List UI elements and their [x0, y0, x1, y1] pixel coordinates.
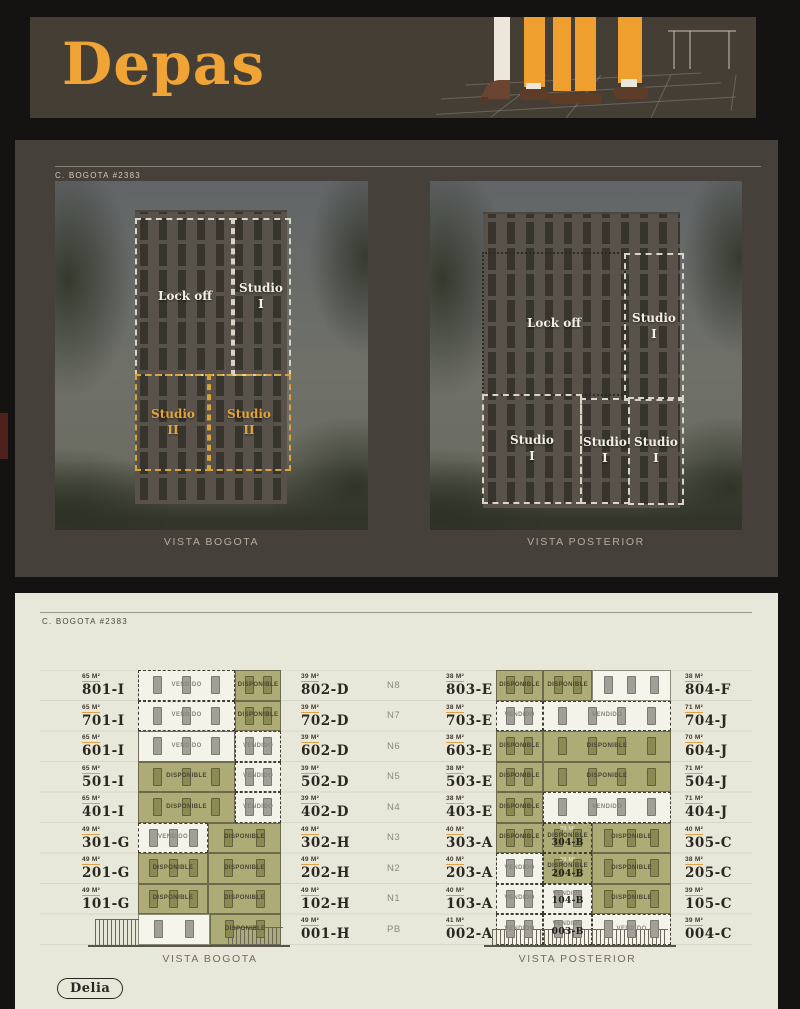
address-label: C. BOGOTA #2383	[55, 171, 141, 180]
fence-decoration	[95, 919, 139, 946]
unit-label: 38 M²603-E	[444, 731, 496, 762]
unit-box: DISPONIBLE	[543, 762, 671, 793]
overlay-label: Studio I	[510, 433, 554, 464]
floor-row: N4	[387, 792, 421, 823]
floor-label: N6	[387, 741, 400, 752]
unit-status: VENDIDO	[505, 712, 535, 719]
facade-strip: VENDIDOVENDIDO104-BDISPONIBLE	[496, 884, 671, 915]
unit-text: VENDIDO	[497, 702, 542, 731]
elevation-row: 38 M²803-EDISPONIBLEDISPONIBLE38 M²804-F	[444, 670, 747, 701]
elevation-row: 49 M²101-GDISPONIBLEDISPONIBLE49 M²102-H	[66, 884, 364, 915]
unit-status: DISPONIBLE	[611, 895, 652, 902]
caption-vista-bogota: VISTA BOGOTA	[55, 536, 368, 548]
unit-code: 501-I	[82, 775, 125, 789]
unit-code: 302-H	[301, 836, 350, 850]
unit-text: DISPONIBLE	[544, 671, 591, 700]
unit-box: VENDIDO	[138, 731, 235, 762]
unit-code: 104-B	[552, 897, 584, 907]
unit-area: 65 M²	[82, 765, 100, 774]
floor-levels-column: N8N7N6N5N4N3N2N1PB	[387, 670, 421, 945]
photo-vista-bogota: Lock off Studio I Studio II Studio II	[55, 181, 368, 530]
unit-label: 65 M²701-I	[66, 701, 138, 732]
unit-code: 201-G	[82, 866, 130, 880]
unit-text: DISPONIBLE	[236, 671, 280, 700]
unit-status: DISPONIBLE	[224, 834, 265, 841]
facade-strip: VENDIDODISPONIBLE	[138, 823, 281, 854]
unit-status: DISPONIBLE	[587, 743, 628, 750]
unit-status: DISPONIBLE	[499, 773, 540, 780]
facade-strip: VENDIDO39 M²DISPONIBLE204-BDISPONIBLE	[496, 853, 671, 884]
unit-box: DISPONIBLE	[592, 823, 671, 854]
facade-strip: VENDIDOVENDIDO003-BVENDIDO	[496, 914, 671, 945]
overlay-label: Studio II	[151, 407, 195, 438]
unit-label: 38 M²803-E	[444, 670, 496, 701]
unit-code: 305-C	[685, 836, 732, 850]
unit-code: 303-A	[446, 836, 493, 850]
unit-label: 39 M²502-D	[281, 762, 364, 793]
elevation-row: 65 M²501-IDISPONIBLEVENDIDO39 M²502-D	[66, 762, 364, 793]
elevation-row: 41 M²002-AVENDIDOVENDIDO003-BVENDIDO39 M…	[444, 914, 747, 945]
unit-box: DISPONIBLE	[496, 762, 543, 793]
unit-text: VENDIDO	[544, 793, 670, 822]
floor-label: N7	[387, 710, 400, 721]
unit-status: VENDIDO	[172, 682, 202, 689]
unit-box: DISPONIBLE	[138, 792, 235, 823]
unit-text: DISPONIBLE	[497, 763, 542, 792]
unit-label: 38 M²403-E	[444, 792, 496, 823]
unit-text: DISPONIBLE	[211, 915, 281, 944]
unit-area: 39 M²	[301, 765, 319, 774]
unit-status: VENDIDO	[158, 834, 188, 841]
unit-box	[592, 670, 671, 701]
unit-area: 65 M²	[82, 704, 100, 713]
unit-box: VENDIDO	[543, 701, 671, 732]
unit-status: DISPONIBLE	[153, 895, 194, 902]
unit-box: VENDIDO	[235, 792, 281, 823]
unit-code: 001-H	[301, 927, 350, 941]
unit-text: DISPONIBLE	[497, 732, 542, 761]
unit-box: DISPONIBLE	[496, 823, 543, 854]
availability-panel: C. BOGOTA #2383 65 M²801-IVENDIDODISPONI…	[15, 593, 778, 1009]
unit-box: DISPONIBLE	[208, 823, 281, 854]
floor-label: PB	[387, 924, 401, 935]
overlay-label: Studio I	[239, 281, 283, 312]
unit-code: 603-E	[446, 744, 493, 758]
overlay-studio-1: Studio I	[628, 397, 684, 505]
unit-code: 704-J	[685, 714, 728, 728]
unit-status: VENDIDO	[592, 804, 622, 811]
floor-row: N2	[387, 853, 421, 884]
unit-text: 39 M²DISPONIBLE304-B	[544, 824, 591, 853]
unit-text: DISPONIBLE	[544, 732, 670, 761]
unit-text: DISPONIBLE	[139, 885, 207, 914]
unit-label: 39 M²802-D	[281, 670, 364, 701]
unit-label: 70 M²604-J	[671, 731, 747, 762]
people-legs-illustration	[436, 17, 756, 118]
unit-area: 40 M²	[446, 856, 464, 865]
unit-status: DISPONIBLE	[224, 865, 265, 872]
unit-area: 38 M²	[446, 734, 464, 743]
unit-text: DISPONIBLE	[236, 702, 280, 731]
facade-strip: DISPONIBLEDISPONIBLE	[138, 853, 281, 884]
unit-label: 65 M²501-I	[66, 762, 138, 793]
unit-area: 39 M²	[301, 795, 319, 804]
unit-status: VENDIDO	[505, 895, 535, 902]
unit-code: 604-J	[685, 744, 728, 758]
unit-code: 403-E	[446, 805, 493, 819]
unit-box: VENDIDO	[543, 792, 671, 823]
unit-text: DISPONIBLE	[544, 763, 670, 792]
unit-status: VENDIDO	[172, 743, 202, 750]
unit-status: DISPONIBLE	[238, 712, 279, 719]
facade-strip: VENDIDODISPONIBLE	[138, 701, 281, 732]
unit-code: 204-B	[552, 870, 584, 880]
caption-vista-posterior: VISTA POSTERIOR	[430, 536, 742, 548]
unit-box: DISPONIBLE	[138, 853, 208, 884]
unit-code: 504-J	[685, 775, 728, 789]
elevation-row: 40 M²203-AVENDIDO39 M²DISPONIBLE204-BDIS…	[444, 853, 747, 884]
facade-strip: VENDIDOVENDIDO	[496, 701, 671, 732]
floor-row: N7	[387, 701, 421, 732]
divider	[40, 612, 752, 613]
floor-row: N1	[387, 884, 421, 915]
unit-text: VENDIDO104-B	[544, 885, 591, 914]
unit-text: VENDIDO	[236, 793, 280, 822]
unit-label: 39 M²402-D	[281, 792, 364, 823]
unit-area: 39 M²	[685, 917, 703, 926]
unit-code: 105-C	[685, 897, 732, 911]
overlay-studio-1: Studio I	[580, 398, 630, 504]
elevation-row: 49 M²301-GVENDIDODISPONIBLE49 M²302-H	[66, 823, 364, 854]
table-icon	[668, 31, 736, 69]
unit-label: 40 M²103-A	[444, 884, 496, 915]
unit-code: 601-I	[82, 744, 125, 758]
unit-label: 65 M²801-I	[66, 670, 138, 701]
facade-strip: DISPONIBLEDISPONIBLE	[496, 670, 671, 701]
unit-text: DISPONIBLE	[209, 885, 280, 914]
unit-code: 202-H	[301, 866, 350, 880]
caption-vista-posterior: VISTA POSTERIOR	[470, 953, 685, 965]
facade-strip: DISPONIBLE39 M²DISPONIBLE304-BDISPONIBLE	[496, 823, 671, 854]
delia-logo: Delia	[57, 978, 123, 999]
unit-area: 38 M²	[446, 795, 464, 804]
facade-strip: VENDIDOVENDIDO	[138, 731, 281, 762]
unit-text: DISPONIBLE	[593, 854, 670, 883]
overlay-studio-1: Studio I	[231, 218, 291, 376]
unit-box: DISPONIBLE	[210, 914, 282, 945]
unit-area: 39 M²	[301, 704, 319, 713]
unit-text: DISPONIBLE	[139, 793, 234, 822]
unit-box: DISPONIBLE	[208, 853, 281, 884]
elevation-vista-bogota: 65 M²801-IVENDIDODISPONIBLE39 M²802-D65 …	[66, 670, 364, 945]
unit-box: VENDIDO	[235, 762, 281, 793]
floor-row: PB	[387, 914, 421, 945]
unit-area: 71 M²	[685, 765, 703, 774]
unit-box: 39 M²DISPONIBLE304-B	[543, 823, 592, 854]
unit-text: VENDIDO	[497, 885, 542, 914]
unit-label: 49 M²101-G	[66, 884, 138, 915]
buildings-panel: C. BOGOTA #2383 Lock off Studio I Studio…	[15, 140, 778, 577]
unit-code: 701-I	[82, 714, 125, 728]
overlay-label: Studio I	[632, 311, 676, 342]
unit-status: DISPONIBLE	[166, 804, 207, 811]
unit-status: DISPONIBLE	[499, 682, 540, 689]
elevation-row: 65 M²601-IVENDIDOVENDIDO39 M²602-D	[66, 731, 364, 762]
facade-strip: DISPONIBLEVENDIDO	[138, 792, 281, 823]
overlay-label: Lock off	[158, 289, 212, 305]
unit-area: 49 M²	[82, 887, 100, 896]
unit-text: DISPONIBLE	[497, 793, 542, 822]
unit-area: 38 M²	[685, 856, 703, 865]
divider	[55, 166, 761, 167]
unit-label: 65 M²401-I	[66, 792, 138, 823]
facade-strip: VENDIDODISPONIBLE	[138, 670, 281, 701]
overlay-label: Lock off	[527, 316, 581, 332]
unit-text: VENDIDO	[593, 915, 670, 944]
unit-box: VENDIDO	[496, 884, 543, 915]
unit-label: 49 M²202-H	[281, 853, 364, 884]
overlay-lock-off: Lock off	[482, 252, 626, 396]
unit-code: 101-G	[82, 897, 130, 911]
ground-line	[484, 945, 676, 947]
unit-code: 205-C	[685, 866, 732, 880]
floor-row: N3	[387, 823, 421, 854]
unit-status: DISPONIBLE	[166, 773, 207, 780]
unit-label: 39 M²702-D	[281, 701, 364, 732]
unit-label: 38 M²703-E	[444, 701, 496, 732]
unit-status: VENDIDO	[505, 926, 535, 933]
facade-strip: DISPONIBLEDISPONIBLE	[496, 762, 671, 793]
unit-label: 38 M²503-E	[444, 762, 496, 793]
unit-text: DISPONIBLE	[209, 854, 280, 883]
unit-code: 804-F	[685, 683, 731, 697]
unit-status: DISPONIBLE	[499, 743, 540, 750]
unit-label: 71 M²504-J	[671, 762, 747, 793]
unit-label: 49 M²301-G	[66, 823, 138, 854]
unit-area: 40 M²	[685, 826, 703, 835]
overlay-lock-off: Lock off	[135, 218, 235, 376]
unit-area: 49 M²	[301, 917, 319, 926]
unit-area: 40 M²	[446, 887, 464, 896]
unit-text: DISPONIBLE	[593, 824, 670, 853]
unit-status: DISPONIBLE	[499, 804, 540, 811]
overlay-studio-2: Studio II	[135, 374, 211, 471]
unit-area: 49 M²	[82, 826, 100, 835]
unit-area: 39 M²	[685, 887, 703, 896]
unit-status: VENDIDO	[243, 773, 273, 780]
elevation-row: 40 M²103-AVENDIDOVENDIDO104-BDISPONIBLE3…	[444, 884, 747, 915]
unit-box: VENDIDO	[138, 701, 235, 732]
unit-code: 102-H	[301, 897, 350, 911]
unit-box: VENDIDO	[235, 731, 281, 762]
unit-code: 802-D	[301, 683, 349, 697]
unit-box: DISPONIBLE	[496, 731, 543, 762]
unit-status: VENDIDO	[243, 804, 273, 811]
unit-text: DISPONIBLE	[593, 885, 670, 914]
overlay-label: Studio I	[634, 435, 678, 466]
unit-area: 65 M²	[82, 795, 100, 804]
unit-text	[593, 671, 670, 700]
unit-label: 65 M²601-I	[66, 731, 138, 762]
unit-code: 703-E	[446, 714, 493, 728]
unit-box: VENDIDO003-B	[543, 914, 592, 945]
unit-status: DISPONIBLE	[225, 926, 266, 933]
floor-label: N5	[387, 771, 400, 782]
unit-box: DISPONIBLE	[592, 853, 671, 884]
unit-box: DISPONIBLE	[138, 884, 208, 915]
unit-code: 304-B	[552, 839, 584, 849]
facade-strip: DISPONIBLE	[138, 914, 281, 945]
unit-label: 49 M²201-G	[66, 853, 138, 884]
elevation-row: 65 M²401-IDISPONIBLEVENDIDO39 M²402-D	[66, 792, 364, 823]
unit-status: VENDIDO	[243, 743, 273, 750]
unit-status: VENDIDO	[505, 865, 535, 872]
unit-text: VENDIDO	[139, 732, 234, 761]
facade-strip: DISPONIBLEDISPONIBLE	[138, 884, 281, 915]
floor-label: N2	[387, 863, 400, 874]
unit-box: DISPONIBLE	[235, 670, 281, 701]
header-band: Depas	[30, 17, 756, 118]
elevation-row: 40 M²303-ADISPONIBLE39 M²DISPONIBLE304-B…	[444, 823, 747, 854]
unit-code: 203-A	[446, 866, 493, 880]
unit-text: VENDIDO	[139, 702, 234, 731]
unit-text: VENDIDO003-B	[544, 915, 591, 944]
unit-box: DISPONIBLE	[592, 884, 671, 915]
unit-text: VENDIDO	[139, 671, 234, 700]
unit-area: 41 M²	[446, 917, 464, 926]
elevation-row: 49 M²201-GDISPONIBLEDISPONIBLE49 M²202-H	[66, 853, 364, 884]
unit-text: VENDIDO	[236, 732, 280, 761]
unit-code: 702-D	[301, 714, 349, 728]
unit-code: 402-D	[301, 805, 349, 819]
unit-text: DISPONIBLE	[139, 763, 234, 792]
elevation-row: 38 M²503-EDISPONIBLEDISPONIBLE71 M²504-J	[444, 762, 747, 793]
unit-code: 301-G	[82, 836, 130, 850]
depas-logo: Depas	[62, 27, 265, 102]
unit-label: 49 M²102-H	[281, 884, 364, 915]
unit-area: 65 M²	[82, 734, 100, 743]
unit-code: 002-A	[446, 927, 493, 941]
unit-code: 801-I	[82, 683, 125, 697]
unit-label: 39 M²105-C	[671, 884, 747, 915]
floor-label: N1	[387, 893, 400, 904]
unit-code: 602-D	[301, 744, 349, 758]
overlay-studio-1: Studio I	[624, 253, 684, 401]
floor-row: N6	[387, 731, 421, 762]
elevation-row: 38 M²403-EDISPONIBLEVENDIDO71 M²404-J	[444, 792, 747, 823]
unit-area: 71 M²	[685, 704, 703, 713]
unit-label: 71 M²704-J	[671, 701, 747, 732]
unit-box: DISPONIBLE	[543, 670, 592, 701]
unit-label: 38 M²804-F	[671, 670, 747, 701]
overlay-label: Studio I	[583, 435, 627, 466]
orange-legs	[520, 17, 648, 104]
unit-code: 404-J	[685, 805, 728, 819]
facade-strip: DISPONIBLEDISPONIBLE	[496, 731, 671, 762]
floor-label: N3	[387, 832, 400, 843]
unit-box: 39 M²DISPONIBLE204-B	[543, 853, 592, 884]
unit-code: 003-B	[552, 928, 584, 938]
unit-label: 40 M²203-A	[444, 853, 496, 884]
unit-area: 38 M²	[446, 673, 464, 682]
elevation-row: 65 M²801-IVENDIDODISPONIBLE39 M²802-D	[66, 670, 364, 701]
unit-code: 401-I	[82, 805, 125, 819]
unit-status: DISPONIBLE	[238, 682, 279, 689]
elevation-vista-posterior: 38 M²803-EDISPONIBLEDISPONIBLE38 M²804-F…	[444, 670, 747, 945]
unit-box: DISPONIBLE	[208, 884, 281, 915]
unit-box: DISPONIBLE	[496, 670, 543, 701]
unit-status: DISPONIBLE	[611, 865, 652, 872]
white-leg	[480, 17, 510, 104]
unit-text: DISPONIBLE	[209, 824, 280, 853]
unit-text: VENDIDO	[236, 763, 280, 792]
unit-text: 39 M²DISPONIBLE204-B	[544, 854, 591, 883]
unit-box: VENDIDO	[592, 914, 671, 945]
unit-label: 41 M²002-A	[444, 914, 496, 945]
unit-label: 49 M²302-H	[281, 823, 364, 854]
unit-label: 39 M²602-D	[281, 731, 364, 762]
unit-label: 49 M²001-H	[281, 914, 364, 945]
unit-area: 39 M²	[301, 673, 319, 682]
unit-text: VENDIDO	[497, 854, 542, 883]
unit-text: DISPONIBLE	[497, 824, 542, 853]
unit-code: 103-A	[446, 897, 493, 911]
unit-box: DISPONIBLE	[138, 762, 235, 793]
unit-box: DISPONIBLE	[496, 792, 543, 823]
unit-box: VENDIDO	[496, 914, 543, 945]
elevation-row: 65 M²701-IVENDIDODISPONIBLE39 M²702-D	[66, 701, 364, 732]
ground-line	[88, 945, 290, 947]
unit-label: 40 M²305-C	[671, 823, 747, 854]
unit-label: 39 M²004-C	[671, 914, 747, 945]
unit-status: DISPONIBLE	[611, 834, 652, 841]
unit-area: 49 M²	[301, 826, 319, 835]
unit-box: DISPONIBLE	[543, 731, 671, 762]
unit-area: 65 M²	[82, 673, 100, 682]
unit-area: 39 M²	[301, 734, 319, 743]
elevation-row: 38 M²703-EVENDIDOVENDIDO71 M²704-J	[444, 701, 747, 732]
unit-status: VENDIDO	[617, 926, 647, 933]
unit-area: 49 M²	[301, 887, 319, 896]
elevation-row: 38 M²603-EDISPONIBLEDISPONIBLE70 M²604-J	[444, 731, 747, 762]
floor-label: N4	[387, 802, 400, 813]
unit-status: VENDIDO	[592, 712, 622, 719]
unit-area: 38 M²	[685, 673, 703, 682]
unit-box: VENDIDO	[138, 670, 235, 701]
unit-status: DISPONIBLE	[587, 773, 628, 780]
unit-box: DISPONIBLE	[235, 701, 281, 732]
unit-label: 40 M²303-A	[444, 823, 496, 854]
facade-strip: DISPONIBLEVENDIDO	[496, 792, 671, 823]
unit-area: 38 M²	[446, 765, 464, 774]
unit-text: VENDIDO	[497, 915, 542, 944]
unit-area: 38 M²	[446, 704, 464, 713]
unit-code: 502-D	[301, 775, 349, 789]
unit-text	[139, 915, 209, 944]
side-tab[interactable]	[0, 413, 8, 459]
floor-row: N5	[387, 762, 421, 793]
unit-label: 71 M²404-J	[671, 792, 747, 823]
overlay-label: Studio II	[227, 407, 271, 438]
unit-status: DISPONIBLE	[547, 682, 588, 689]
unit-box	[138, 914, 210, 945]
unit-area: 40 M²	[446, 826, 464, 835]
unit-box: VENDIDO104-B	[543, 884, 592, 915]
unit-status: DISPONIBLE	[153, 865, 194, 872]
unit-area: 70 M²	[685, 734, 703, 743]
floor-label: N8	[387, 680, 400, 691]
unit-text: VENDIDO	[544, 702, 670, 731]
